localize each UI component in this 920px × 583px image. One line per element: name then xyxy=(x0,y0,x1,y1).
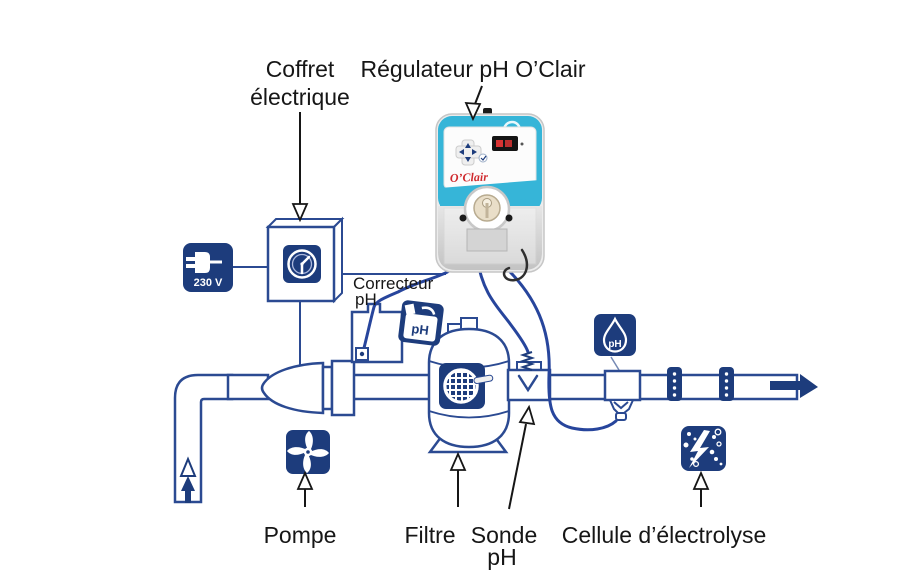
pump-cone xyxy=(262,363,323,413)
pipe-segment xyxy=(350,375,432,399)
electrolysis-icon xyxy=(681,426,726,471)
oclair-logo: O’Clair xyxy=(450,170,489,185)
label-filtre: Filtre xyxy=(404,522,455,548)
label-sonde-line2: pH xyxy=(487,544,516,570)
pump-fan-icon xyxy=(286,430,330,474)
injector-nub xyxy=(616,413,626,420)
label-coffret-line1: Coffret xyxy=(266,56,335,82)
clock-icon xyxy=(283,245,321,283)
injection-fitting xyxy=(605,371,640,420)
canister-ph-text: pH xyxy=(411,321,430,338)
label-cellule: Cellule d’électrolyse xyxy=(562,522,767,548)
ph-canister-icon: pH xyxy=(398,300,445,347)
ph-regulator-device: O’Clair xyxy=(436,108,544,280)
pump-block xyxy=(332,361,354,415)
ph-drop-icon: pH xyxy=(594,314,636,356)
injector-saddle xyxy=(605,371,640,400)
drop-ph-text: pH xyxy=(608,339,621,350)
diagram-canvas: O’Clair 230 V xyxy=(0,0,920,583)
label-coffret-line2: électrique xyxy=(250,84,350,110)
suction-strainer xyxy=(356,348,368,360)
peristaltic-pump-head xyxy=(460,187,513,251)
pump-collar xyxy=(323,367,332,409)
electrical-box xyxy=(268,219,342,301)
ph-probe-fitting xyxy=(508,362,550,400)
filter xyxy=(429,318,509,452)
label-regulateur: Régulateur pH O’Clair xyxy=(361,56,586,82)
pump xyxy=(262,361,354,415)
plug-230v-icon: 230 V xyxy=(183,243,233,292)
label-correcteur-line2: pH xyxy=(355,290,377,309)
label-pompe: Pompe xyxy=(264,522,337,548)
probe-tee xyxy=(508,370,550,400)
voltage-badge: 230 V xyxy=(194,277,223,289)
pipe-elbow xyxy=(175,375,232,502)
pool-ph-system-diagram: O’Clair 230 V xyxy=(0,0,920,583)
pump-head-bracket xyxy=(467,229,507,251)
pointer-drop-to-injector xyxy=(611,357,619,370)
